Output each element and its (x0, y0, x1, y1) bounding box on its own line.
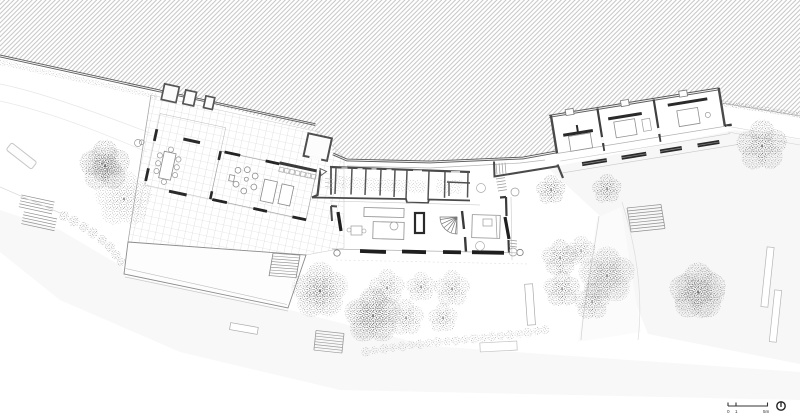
svg-text:5m: 5m (763, 409, 770, 414)
svg-text:0: 0 (727, 409, 730, 414)
svg-text:1: 1 (735, 409, 738, 414)
